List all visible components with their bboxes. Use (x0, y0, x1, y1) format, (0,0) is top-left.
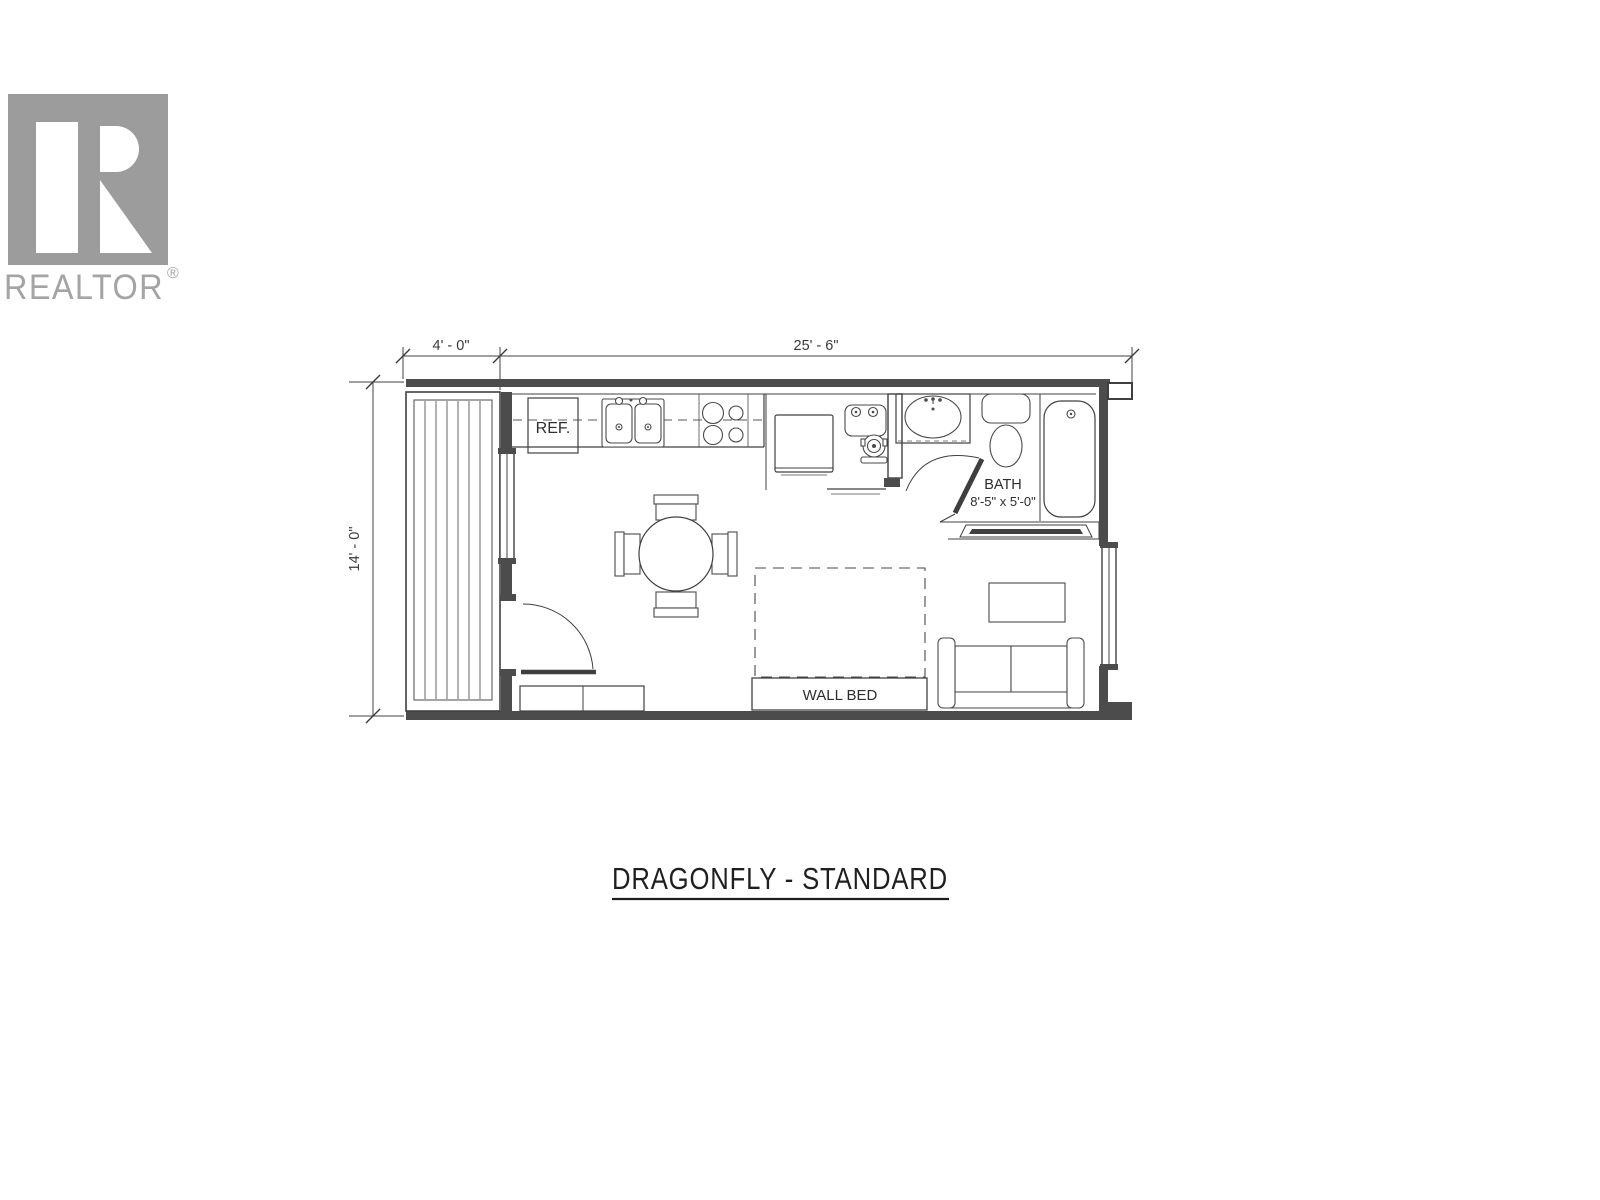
realtor-logo: REALTOR ® (4, 94, 179, 307)
door-jamb-bottom (500, 669, 516, 676)
wall-top (406, 379, 1110, 387)
coffee-table (989, 583, 1065, 622)
door-jamb-top (500, 594, 516, 601)
bath-label: BATH (984, 477, 1022, 493)
bath-partition-wall (888, 394, 902, 478)
sofa (938, 638, 1084, 708)
water-heater (861, 435, 887, 463)
dim-label-porch-width: 4' - 0" (433, 338, 470, 354)
bath-vanity (896, 394, 970, 443)
bath-size-label: 8'-5" x 5'-0" (970, 494, 1036, 509)
dining-table (615, 495, 737, 617)
bath-south-wall (940, 514, 1099, 539)
wall-bed-folddown-outline (755, 568, 925, 677)
bathroom: BATH 8'-5" x 5'-0" (884, 394, 1099, 539)
window-left (498, 448, 516, 564)
utility-sink (845, 405, 886, 436)
entry-bench (520, 686, 644, 711)
washer-dryer-unit (775, 415, 833, 475)
registered-mark-icon: ® (167, 265, 179, 282)
toilet (982, 394, 1030, 467)
realtor-wordmark: REALTOR (4, 268, 164, 307)
entry-door-swing-arc (523, 604, 593, 669)
floor-plan-canvas: REALTOR ® 4' - 0" 25' - 6" 14' - 0" (0, 0, 1600, 1200)
wall-bottom (406, 711, 1110, 720)
corner-post-top-right (1108, 383, 1132, 399)
window-right (1100, 542, 1118, 670)
floor-plan-page: REALTOR ® 4' - 0" 25' - 6" 14' - 0" (0, 0, 1600, 1200)
logo-square (8, 94, 168, 265)
entry-door (521, 604, 596, 672)
corner-post-bottom-right (1106, 702, 1132, 720)
plan-title-text: DRAGONFLY - STANDARD (612, 861, 948, 896)
kitchen-sink (602, 398, 664, 448)
wall-right-upper (1099, 387, 1108, 546)
refrigerator-label: REF. (536, 420, 571, 437)
dim-label-overall-depth: 14' - 0" (347, 527, 363, 572)
bath-door-jamb (884, 478, 900, 487)
wall-bed: WALL BED (752, 568, 927, 710)
dim-label-overall-width: 25' - 6" (794, 338, 839, 354)
bathtub (1040, 394, 1095, 521)
utility-nook (766, 394, 887, 494)
wall-bed-label: WALL BED (803, 687, 878, 704)
plan-title: DRAGONFLY - STANDARD (612, 861, 949, 899)
deck (406, 392, 500, 711)
cooktop (699, 394, 748, 447)
kitchen: REF. (512, 394, 764, 453)
dimension-left: 14' - 0" (347, 375, 404, 723)
